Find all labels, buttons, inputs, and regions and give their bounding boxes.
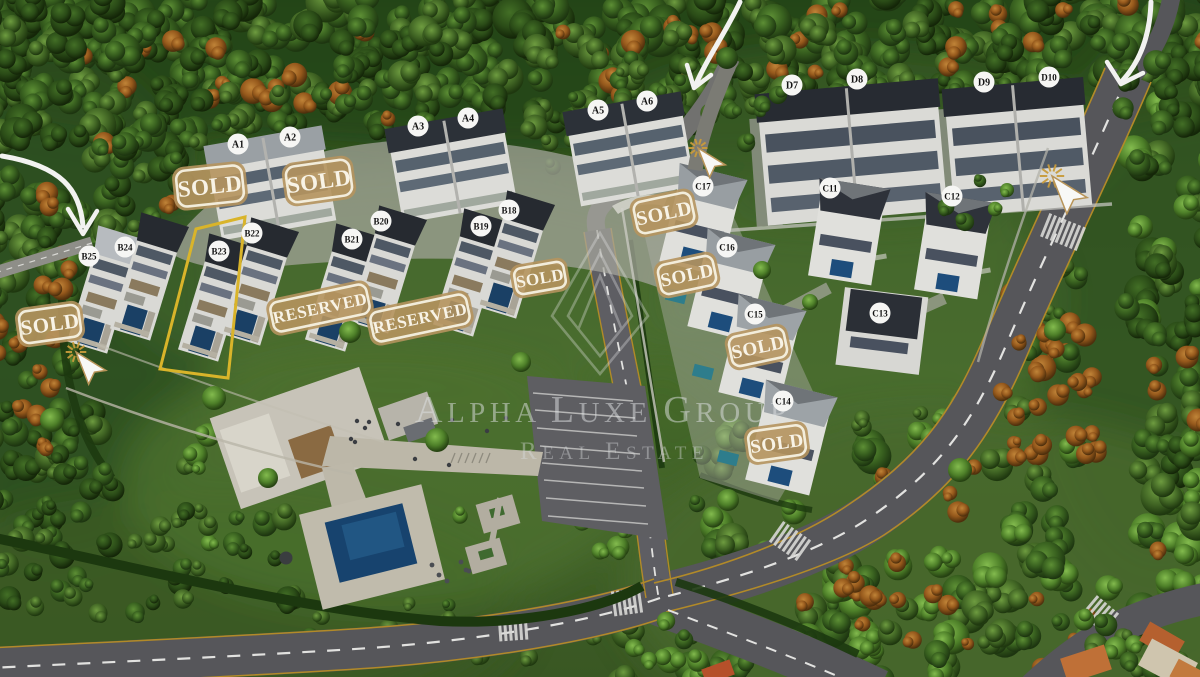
svg-text:C14: C14 — [775, 397, 791, 407]
svg-text:A6: A6 — [641, 97, 653, 108]
svg-text:C12: C12 — [944, 192, 960, 202]
svg-text:C16: C16 — [719, 243, 735, 253]
svg-text:B25: B25 — [81, 252, 97, 262]
svg-text:A4: A4 — [462, 114, 474, 125]
svg-text:B23: B23 — [211, 247, 227, 257]
svg-text:C17: C17 — [695, 182, 711, 192]
svg-text:A3: A3 — [412, 122, 424, 133]
svg-text:A1: A1 — [232, 140, 244, 151]
svg-text:D9: D9 — [978, 78, 990, 89]
svg-text:B24: B24 — [117, 243, 133, 253]
svg-text:D8: D8 — [851, 75, 863, 86]
svg-text:D7: D7 — [786, 81, 798, 92]
svg-text:B18: B18 — [501, 206, 517, 216]
svg-text:B21: B21 — [344, 235, 360, 245]
svg-text:D10: D10 — [1041, 73, 1057, 83]
svg-text:A2: A2 — [284, 133, 296, 144]
svg-text:C15: C15 — [747, 310, 763, 320]
svg-text:B19: B19 — [473, 222, 489, 232]
svg-text:REAL ESTATE: REAL ESTATE — [520, 438, 709, 465]
svg-text:B20: B20 — [373, 217, 389, 227]
svg-text:C11: C11 — [822, 184, 838, 194]
svg-text:A5: A5 — [592, 106, 604, 117]
svg-text:B22: B22 — [244, 229, 260, 239]
svg-text:C13: C13 — [872, 309, 888, 319]
